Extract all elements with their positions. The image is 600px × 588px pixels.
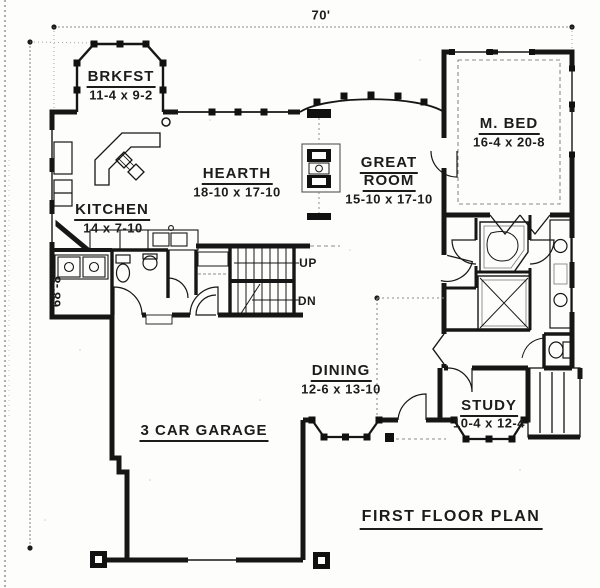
stairs-label-up: UP bbox=[299, 256, 317, 270]
powder-room-fixtures bbox=[116, 254, 157, 282]
master-toilet bbox=[549, 342, 572, 358]
room-label-garage: 3 CAR GARAGE bbox=[139, 422, 268, 442]
room-size-great-room: 15-10 x 17-10 bbox=[345, 192, 432, 207]
room-size-hearth: 18-10 x 17-10 bbox=[193, 185, 280, 200]
room-size-brkfst: 11-4 x 9-2 bbox=[89, 88, 153, 103]
ceiling-break-lines bbox=[198, 246, 446, 439]
great-room-arc-windows bbox=[300, 92, 444, 113]
closet-shelf bbox=[198, 252, 228, 266]
dim-label-width: 70' bbox=[311, 8, 330, 23]
room-label-brkfst: BRKFST bbox=[87, 68, 156, 88]
room-label-great-room-line2: ROOM bbox=[363, 172, 416, 192]
master-tub bbox=[480, 222, 528, 272]
dim-label-height: 68'-8" bbox=[49, 269, 64, 307]
porch-column bbox=[162, 118, 170, 126]
scan-edge-artifact bbox=[5, 0, 9, 588]
master-shower bbox=[478, 276, 530, 330]
kitchen-island bbox=[95, 133, 160, 185]
fireplace bbox=[302, 109, 340, 220]
room-label-dining: DINING bbox=[311, 362, 372, 382]
room-label-great-room-line1: GREAT bbox=[360, 154, 418, 174]
room-size-m-bed: 16-4 x 20-8 bbox=[473, 135, 545, 150]
plan-title: FIRST FLOOR PLAN bbox=[360, 508, 543, 530]
porch bbox=[528, 368, 580, 437]
room-label-hearth: HEARTH bbox=[202, 165, 273, 185]
hearth-window-wall bbox=[163, 109, 300, 116]
room-size-dining: 12-6 x 13-10 bbox=[301, 382, 381, 397]
room-size-study: 10-4 x 12-4 bbox=[453, 416, 525, 431]
porch-posts bbox=[90, 433, 394, 569]
stairs-label-dn: DN bbox=[298, 294, 316, 308]
room-label-kitchen: KITCHEN bbox=[74, 201, 150, 221]
dining-bay-window bbox=[309, 417, 383, 441]
room-label-study: STUDY bbox=[460, 397, 518, 417]
room-size-kitchen: 14 x 7-10 bbox=[83, 221, 142, 236]
floor-plan-page: 70' 68'-8" BRKFST 11-4 x 9-2 HEARTH 18-1… bbox=[0, 0, 600, 588]
master-vanity bbox=[550, 220, 571, 328]
room-label-m-bed: M. BED bbox=[479, 115, 540, 135]
kitchen-appliances bbox=[54, 142, 72, 206]
